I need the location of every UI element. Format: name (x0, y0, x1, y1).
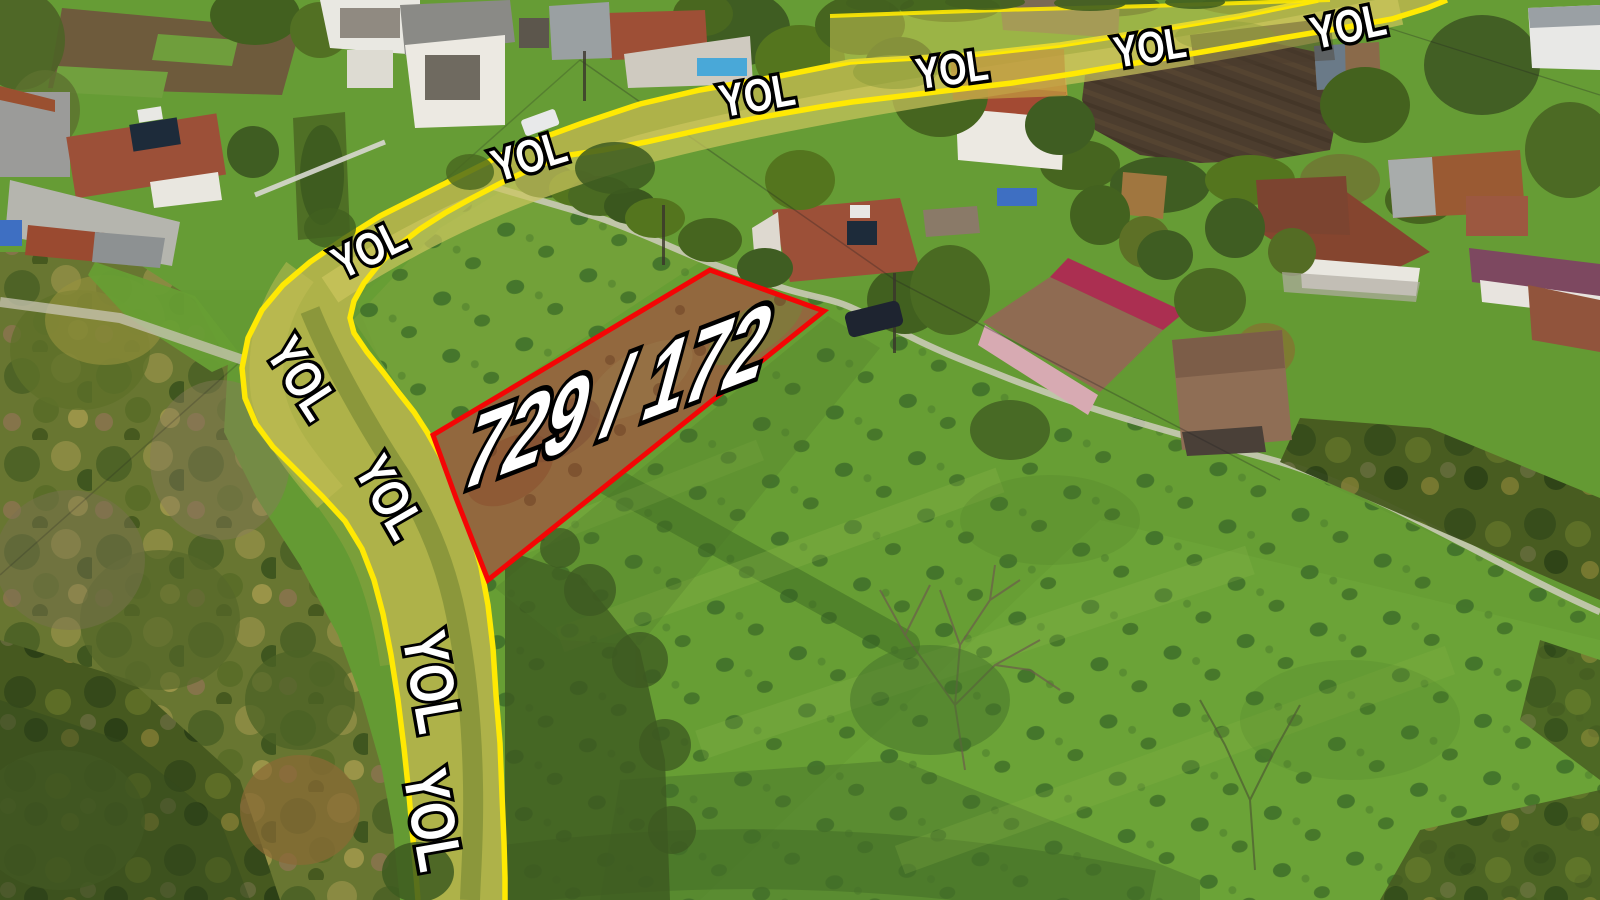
svg-text:YOL: YOL (913, 41, 991, 99)
